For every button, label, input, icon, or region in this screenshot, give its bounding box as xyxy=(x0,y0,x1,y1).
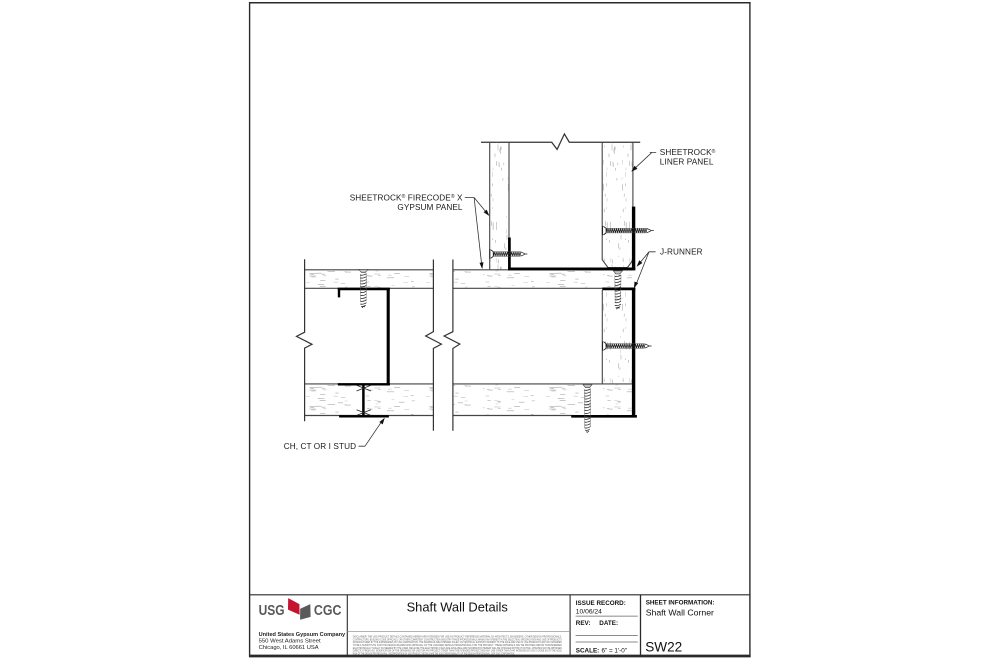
svg-text:United States Gypsum Company: United States Gypsum Company xyxy=(259,632,346,638)
svg-text:SHEET INFORMATION:: SHEET INFORMATION: xyxy=(646,600,715,607)
svg-text:Chicago, IL 60661 USA: Chicago, IL 60661 USA xyxy=(259,645,319,651)
svg-text:SHEETROCK® FIRECODE® X: SHEETROCK® FIRECODE® X xyxy=(350,193,463,202)
svg-text:SW22: SW22 xyxy=(645,639,682,654)
svg-text:DATE:: DATE: xyxy=(599,620,618,627)
svg-text:RISK OF THE DESIGN PROFESSIONA: RISK OF THE DESIGN PROFESSIONAL. INCORPO… xyxy=(353,653,515,656)
svg-text:USG: USG xyxy=(259,603,285,619)
svg-text:10/06/24: 10/06/24 xyxy=(576,609,602,616)
svg-text:SCALE:: SCALE: xyxy=(576,647,599,654)
svg-text:J-RUNNER: J-RUNNER xyxy=(660,248,703,257)
svg-text:CH, CT OR I STUD: CH, CT OR I STUD xyxy=(284,442,356,451)
svg-text:REV:: REV: xyxy=(576,620,591,627)
svg-text:ISSUE RECORD:: ISSUE RECORD: xyxy=(576,600,626,607)
svg-text:CGC: CGC xyxy=(314,603,342,619)
svg-text:LINER PANEL: LINER PANEL xyxy=(660,158,714,167)
svg-text:Shaft Wall Details: Shaft Wall Details xyxy=(407,599,508,614)
svg-text:GYPSUM PANEL: GYPSUM PANEL xyxy=(397,203,463,212)
svg-text:6" = 1'-0": 6" = 1'-0" xyxy=(602,647,627,654)
svg-text:SHEETROCK®: SHEETROCK® xyxy=(660,148,716,157)
svg-text:550 West Adams Street: 550 West Adams Street xyxy=(259,639,321,645)
svg-text:Shaft Wall Corner: Shaft Wall Corner xyxy=(646,608,714,618)
